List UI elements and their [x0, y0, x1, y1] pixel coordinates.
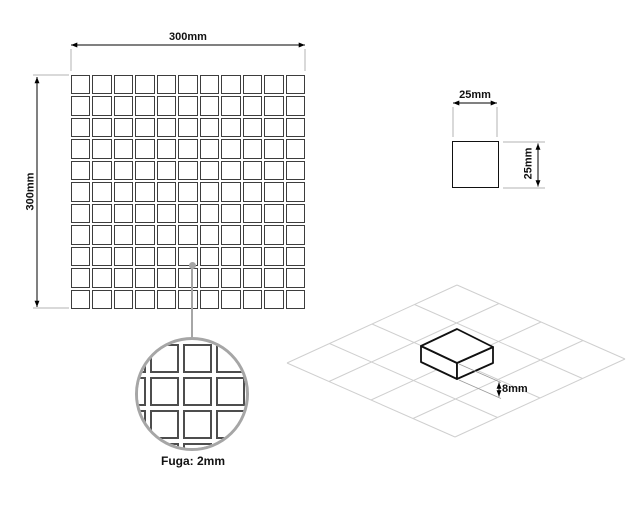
tile-cell	[221, 225, 240, 244]
tile-cell	[178, 182, 197, 201]
tile-cell	[221, 182, 240, 201]
tile-cell	[92, 161, 111, 180]
tile-cell	[92, 225, 111, 244]
tile-cell	[243, 182, 262, 201]
tile-cell	[264, 204, 283, 223]
tile-cell	[157, 161, 176, 180]
tile-cell	[200, 139, 219, 158]
tile-cell	[286, 182, 305, 201]
tile-cell	[135, 96, 154, 115]
detail-tile-cell	[183, 443, 212, 451]
tile-cell	[71, 204, 90, 223]
tile-cell	[157, 225, 176, 244]
tile-cell	[286, 225, 305, 244]
tile-cell	[200, 204, 219, 223]
tile-cell	[200, 118, 219, 137]
tile-cell	[264, 118, 283, 137]
detail-tile-cell	[135, 377, 146, 406]
tile-cell	[114, 290, 133, 309]
chip-height-label: 25mm	[523, 124, 536, 204]
tile-cell	[286, 247, 305, 266]
tile-cell	[71, 268, 90, 287]
tile-cell	[157, 182, 176, 201]
tile-cell	[264, 182, 283, 201]
chip-square	[452, 141, 499, 188]
tile-cell	[200, 96, 219, 115]
tile-cell	[221, 290, 240, 309]
detail-tile-cell	[150, 443, 179, 451]
thickness-ext-bottom	[459, 380, 501, 399]
tile-cell	[71, 118, 90, 137]
tile-cell	[71, 247, 90, 266]
tile-cell	[135, 75, 154, 94]
detail-tile-cell	[216, 377, 245, 406]
tile-cell	[243, 161, 262, 180]
grout-detail-grid	[135, 337, 249, 451]
tile-cell	[71, 161, 90, 180]
tile-cell	[157, 290, 176, 309]
tile-cell	[135, 290, 154, 309]
tile-cell	[243, 290, 262, 309]
tile-cell	[157, 204, 176, 223]
tile-cell	[264, 225, 283, 244]
tile-cell	[157, 268, 176, 287]
tile-cell	[200, 247, 219, 266]
tile-cell	[71, 290, 90, 309]
tile-cell	[114, 75, 133, 94]
tile-cell	[221, 75, 240, 94]
tile-cell	[243, 96, 262, 115]
tile-cell	[221, 161, 240, 180]
tile-cell	[135, 182, 154, 201]
tile-cell	[92, 182, 111, 201]
tile-cell	[286, 96, 305, 115]
iso-grid-line	[287, 285, 457, 363]
tile-cell	[264, 139, 283, 158]
tile-cell	[200, 75, 219, 94]
grout-detail-circle	[135, 337, 249, 451]
tile-cell	[71, 75, 90, 94]
tile-cell	[157, 118, 176, 137]
tile-cell	[92, 118, 111, 137]
tile-cell	[114, 247, 133, 266]
tile-cell	[92, 75, 111, 94]
tile-cell	[157, 247, 176, 266]
tile-cell	[114, 225, 133, 244]
tile-cell	[92, 96, 111, 115]
tile-cell	[178, 75, 197, 94]
iso-grid-line	[329, 304, 499, 382]
tile-cell	[200, 268, 219, 287]
sheet-height-label: 300mm	[25, 142, 38, 242]
mosaic-sheet-grid	[71, 75, 305, 309]
tile-cell	[221, 204, 240, 223]
technical-drawing-canvas: 300mm 300mm 25mm 25mm Fuga: 2mm 8mm	[0, 0, 640, 512]
tile-cell	[286, 290, 305, 309]
tile-cell	[243, 268, 262, 287]
tile-cell	[243, 204, 262, 223]
tile-cell	[71, 139, 90, 158]
tile-cell	[264, 96, 283, 115]
sheet-width-label: 300mm	[138, 31, 238, 44]
iso-grid-line	[287, 363, 455, 437]
detail-tile-cell	[216, 337, 245, 340]
thickness-label: 8mm	[502, 383, 528, 396]
tile-cell	[178, 161, 197, 180]
detail-tile-cell	[216, 344, 245, 373]
tile-cell	[114, 139, 133, 158]
tile-cell	[135, 225, 154, 244]
detail-tile-cell	[216, 410, 245, 439]
detail-tile-cell	[183, 410, 212, 439]
tile-cell	[243, 225, 262, 244]
tile-cell	[114, 204, 133, 223]
detail-tile-cell	[150, 337, 179, 340]
tile-cell	[221, 139, 240, 158]
tile-cell	[135, 268, 154, 287]
thickness-ext-top	[459, 364, 501, 383]
tile-cell	[157, 75, 176, 94]
tile-cell	[200, 182, 219, 201]
detail-tile-cell	[183, 344, 212, 373]
tile-cell	[71, 182, 90, 201]
tile-cell	[286, 161, 305, 180]
tile-cell	[221, 247, 240, 266]
tile-cell	[200, 290, 219, 309]
detail-tile-cell	[150, 344, 179, 373]
tile-cell	[157, 96, 176, 115]
iso-tile-box	[421, 329, 493, 379]
tile-cell	[286, 118, 305, 137]
detail-leader-line	[191, 265, 193, 337]
tile-cell	[286, 139, 305, 158]
tile-cell	[71, 225, 90, 244]
tile-cell	[200, 225, 219, 244]
tile-cell	[243, 139, 262, 158]
tile-cell	[221, 96, 240, 115]
tile-cell	[286, 268, 305, 287]
detail-tile-cell	[135, 344, 146, 373]
tile-cell	[286, 204, 305, 223]
tile-cell	[92, 139, 111, 158]
tile-cell	[221, 268, 240, 287]
iso-floor-grid	[287, 285, 625, 437]
tile-cell	[114, 118, 133, 137]
tile-cell	[135, 247, 154, 266]
tile-cell	[264, 75, 283, 94]
box-right-face	[457, 347, 493, 379]
tile-cell	[178, 139, 197, 158]
tile-cell	[178, 118, 197, 137]
tile-cell	[243, 118, 262, 137]
detail-tile-cell	[135, 337, 146, 340]
tile-cell	[157, 139, 176, 158]
chip-width-label: 25mm	[435, 89, 515, 102]
iso-grid-line	[415, 305, 583, 379]
tile-cell	[92, 247, 111, 266]
tile-cell	[264, 290, 283, 309]
tile-cell	[92, 204, 111, 223]
tile-cell	[135, 118, 154, 137]
detail-tile-cell	[150, 377, 179, 406]
tile-cell	[92, 268, 111, 287]
tile-cell	[92, 290, 111, 309]
tile-cell	[264, 268, 283, 287]
tile-cell	[178, 290, 197, 309]
tile-cell	[114, 182, 133, 201]
iso-grid-line	[330, 344, 498, 418]
tile-cell	[264, 247, 283, 266]
tile-cell	[286, 75, 305, 94]
tile-cell	[178, 225, 197, 244]
tile-cell	[264, 161, 283, 180]
iso-grid-line	[413, 341, 583, 419]
iso-grid-line	[457, 285, 625, 359]
tile-cell	[135, 139, 154, 158]
box-top-face	[421, 329, 493, 363]
tile-cell	[135, 161, 154, 180]
tile-cell	[114, 96, 133, 115]
detail-tile-cell	[150, 410, 179, 439]
detail-tile-cell	[216, 443, 245, 451]
tile-cell	[178, 268, 197, 287]
tile-cell	[178, 96, 197, 115]
tile-cell	[243, 75, 262, 94]
detail-tile-cell	[135, 410, 146, 439]
grout-label: Fuga: 2mm	[133, 455, 253, 468]
tile-cell	[71, 96, 90, 115]
tile-cell	[135, 204, 154, 223]
tile-cell	[221, 118, 240, 137]
iso-grid-line	[455, 359, 625, 437]
box-left-face	[421, 346, 457, 379]
tile-cell	[114, 161, 133, 180]
detail-tile-cell	[183, 337, 212, 340]
tile-cell	[178, 204, 197, 223]
detail-tile-cell	[183, 377, 212, 406]
detail-tile-cell	[135, 443, 146, 451]
tile-cell	[114, 268, 133, 287]
tile-cell	[243, 247, 262, 266]
tile-cell	[200, 161, 219, 180]
